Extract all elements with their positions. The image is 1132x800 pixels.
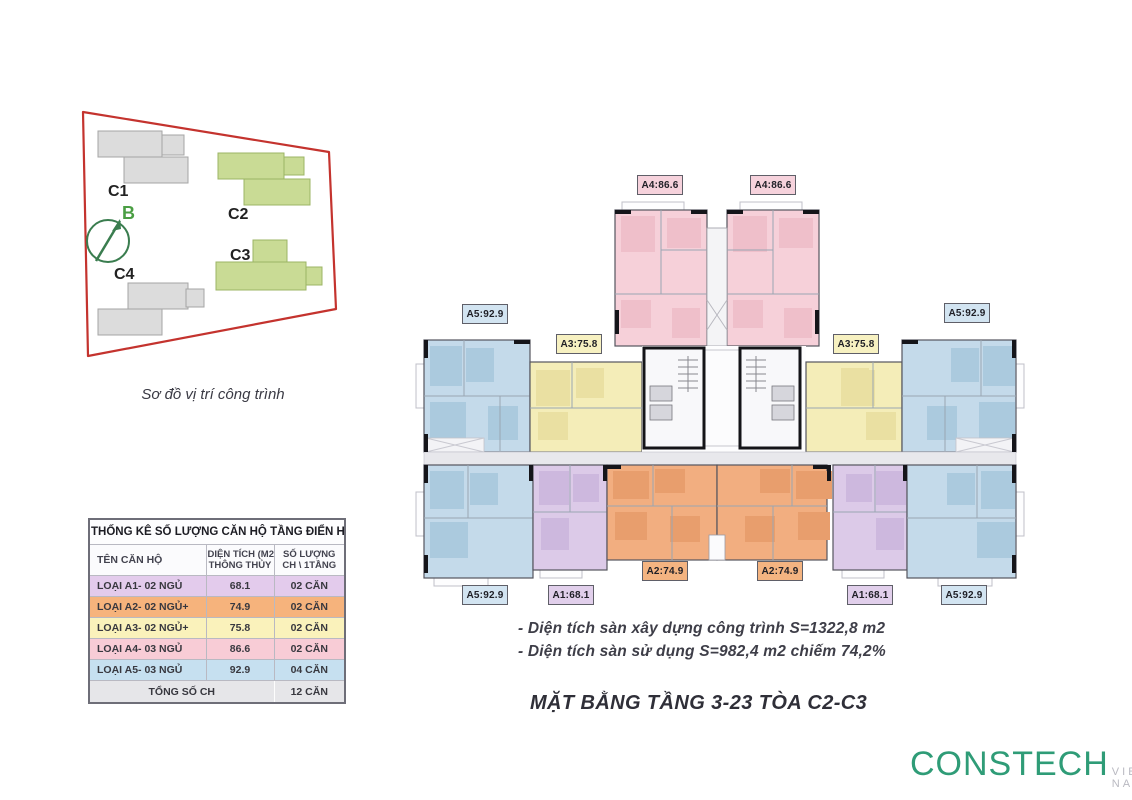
building-label-c3: C3 (230, 247, 251, 264)
stats-cell: 68.1 (206, 576, 274, 597)
col-header-ten-can-ho: TÊN CĂN HỘ (89, 545, 206, 576)
col-header-dien-tich: DIỆN TÍCH (M2) THÔNG THỦY (206, 545, 274, 576)
stats-cell: LOẠI A4- 03 NGỦ (89, 639, 206, 660)
building-core (642, 346, 806, 454)
unit-a3-right (806, 362, 902, 452)
floor-plan: A4:86.6A4:86.6A5:92.9A3:75.8A3:75.8A5:92… (410, 150, 1030, 650)
central-shaft (707, 228, 727, 346)
unit-label-a1-bottom-right: A1:68.1 (847, 585, 893, 605)
stats-table-title: THỐNG KÊ SỐ LƯỢNG CĂN HỘ TẦNG ĐIỂN HÌNH … (89, 519, 345, 545)
site-map-caption: Sơ đồ vị trí công trình (70, 386, 356, 403)
unit-a2-right (717, 465, 832, 560)
stats-cell: LOẠI A3- 02 NGỦ+ (89, 618, 206, 639)
unit-label-a5-top-left: A5:92.9 (462, 304, 508, 324)
stats-cell: LOẠI A1- 02 NGỦ (89, 576, 206, 597)
unit-label-a4-left: A4:86.6 (637, 175, 683, 195)
unit-a5-bottom-left (424, 465, 533, 578)
logo-text: CONSTECH (910, 745, 1109, 784)
floor-plan-sheet: B C1 C2 C3 C4 Sơ đồ vị trí công trình TH… (0, 0, 1132, 800)
building-label-c4: C4 (114, 266, 135, 283)
sheet-title: MẶT BẰNG TẦNG 3-23 TÒA C2-C3 (530, 692, 867, 715)
stats-total-row: TỔNG SỐ CH12 CĂN (89, 681, 345, 704)
stats-row-3: LOẠI A3- 02 NGỦ+75.802 CĂN (89, 618, 345, 639)
stats-table-body: LOẠI A1- 02 NGỦ68.102 CĂNLOẠI A2- 02 NGỦ… (89, 576, 345, 704)
stats-row-2: LOẠI A2- 02 NGỦ+74.902 CĂN (89, 597, 345, 618)
stats-cell: 04 CĂN (274, 660, 345, 681)
col-header-so-luong-line1: SỐ LƯỢNG (276, 549, 344, 560)
floor-plan-drawing (410, 150, 1030, 650)
unit-label-a5-top-right: A5:92.9 (944, 303, 990, 323)
lower-central-notch (709, 535, 725, 560)
col-header-so-luong: SỐ LƯỢNG CH \ 1TẦNG (274, 545, 345, 576)
unit-label-a1-bottom-left: A1:68.1 (548, 585, 594, 605)
stats-cell: LOẠI A5- 03 NGỦ (89, 660, 206, 681)
stats-cell: LOẠI A2- 02 NGỦ+ (89, 597, 206, 618)
note-usable-area: - Diện tích sàn sử dụng S=982,4 m2 chiếm… (518, 640, 886, 663)
stats-row-1: LOẠI A1- 02 NGỦ68.102 CĂN (89, 576, 345, 597)
stats-cell: 92.9 (206, 660, 274, 681)
unit-label-a3-right: A3:75.8 (833, 334, 879, 354)
stats-row-5: LOẠI A5- 03 NGỦ92.904 CĂN (89, 660, 345, 681)
compass-north-label: B (122, 203, 135, 223)
col-header-dien-tich-line2: THÔNG THỦY (208, 560, 273, 571)
building-label-c2: C2 (228, 206, 249, 223)
stats-cell: 02 CĂN (274, 639, 345, 660)
unit-a4-left (615, 210, 707, 346)
stats-cell: 02 CĂN (274, 597, 345, 618)
unit-label-a5-bottom-right: A5:92.9 (941, 585, 987, 605)
stats-cell: 86.6 (206, 639, 274, 660)
col-header-dien-tich-line1: DIỆN TÍCH (M2) (208, 549, 273, 560)
unit-a3-left (530, 362, 642, 452)
unit-a5-top-right (902, 340, 1016, 452)
unit-label-a4-right: A4:86.6 (750, 175, 796, 195)
stats-cell: 02 CĂN (274, 576, 345, 597)
unit-label-a5-bottom-left: A5:92.9 (462, 585, 508, 605)
stats-cell: 74.9 (206, 597, 274, 618)
unit-a1-right (833, 465, 907, 570)
stats-total-count: 12 CĂN (274, 681, 345, 704)
unit-label-a3-left: A3:75.8 (556, 334, 602, 354)
unit-label-a2-right: A2:74.9 (757, 561, 803, 581)
stats-cell: 75.8 (206, 618, 274, 639)
unit-label-a2-left: A2:74.9 (642, 561, 688, 581)
apartment-stats-table: THỐNG KÊ SỐ LƯỢNG CĂN HỘ TẦNG ĐIỂN HÌNH … (88, 518, 346, 704)
unit-a4-right (727, 210, 819, 346)
unit-a5-bottom-right (907, 465, 1016, 578)
note-construction-area: - Diện tích sàn xây dựng công trình S=13… (518, 617, 886, 640)
col-header-so-luong-line2: CH \ 1TẦNG (276, 560, 344, 571)
building-label-c1: C1 (108, 183, 129, 200)
area-notes: - Diện tích sàn xây dựng công trình S=13… (518, 617, 886, 663)
stats-total-label: TỔNG SỐ CH (89, 681, 274, 704)
logo-suffix: VIET NAM (1112, 766, 1132, 790)
unit-a2-left (607, 465, 717, 560)
stats-cell: 02 CĂN (274, 618, 345, 639)
unit-a1-left (533, 465, 607, 570)
stats-row-4: LOẠI A4- 03 NGỦ86.602 CĂN (89, 639, 345, 660)
unit-a5-top-left (424, 340, 530, 452)
constech-logo: CONSTECH VIET NAM (910, 745, 1132, 790)
site-location-diagram: B C1 C2 C3 C4 (68, 95, 358, 425)
